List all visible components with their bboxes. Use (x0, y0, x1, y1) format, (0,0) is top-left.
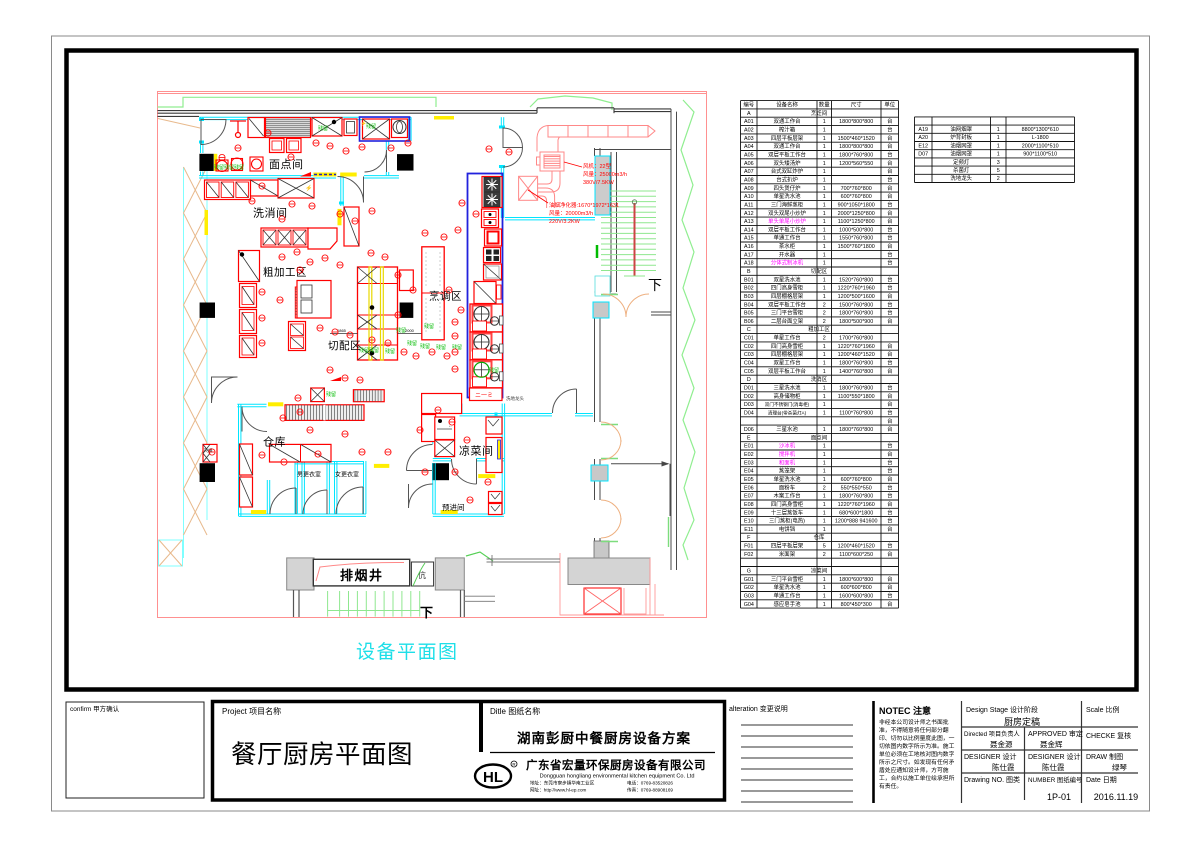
svg-text:定频灯: 定频灯 (953, 158, 970, 166)
svg-text:E02: E02 (744, 452, 754, 458)
svg-text:A14: A14 (744, 227, 754, 233)
svg-text:四头煲仔炉: 四头煲仔炉 (774, 184, 801, 192)
svg-text:NUMBER 图纸编号: NUMBER 图纸编号 (1028, 775, 1082, 784)
svg-text:C05: C05 (744, 369, 754, 375)
svg-text:双头矮汤炉: 双头矮汤炉 (774, 159, 801, 167)
svg-text:烹饪间: 烹饪间 (811, 109, 827, 117)
svg-text:清理台(带杀菌灯A): 清理台(带杀菌灯A) (768, 409, 807, 416)
svg-text:台: 台 (887, 300, 892, 308)
svg-text:1: 1 (823, 194, 826, 200)
svg-text:单通工作台: 单通工作台 (774, 234, 801, 242)
svg-text:1500*460*1520: 1500*460*1520 (838, 136, 875, 142)
svg-text:G02: G02 (744, 585, 754, 591)
svg-text:1: 1 (823, 227, 826, 233)
svg-text:尺寸: 尺寸 (851, 101, 862, 109)
svg-text:餐厅厨房平面图: 餐厅厨房平面图 (231, 741, 413, 769)
svg-text:1: 1 (823, 410, 826, 416)
svg-text:双星工作台: 双星工作台 (774, 359, 801, 367)
svg-text:湖南彭厨中餐厨房设备方案: 湖南彭厨中餐厨房设备方案 (517, 730, 691, 746)
svg-text:烹调区: 烹调区 (429, 290, 462, 303)
svg-text:仓库: 仓库 (814, 533, 825, 541)
svg-text:1100*550*1800: 1100*550*1800 (838, 394, 875, 400)
svg-text:1: 1 (823, 244, 826, 250)
svg-text:CHECKE 复核: CHECKE 复核 (1086, 731, 1131, 740)
svg-text:1P-01: 1P-01 (1047, 792, 1071, 802)
svg-text:残留: 残留 (424, 323, 434, 330)
svg-text:三门平台雪柜: 三门平台雪柜 (771, 575, 804, 583)
svg-text:E03: E03 (744, 460, 754, 466)
svg-text:台: 台 (887, 292, 892, 300)
svg-text:E: E (747, 435, 751, 441)
svg-text:1: 1 (823, 136, 826, 142)
svg-text:700*760*800: 700*760*800 (841, 186, 872, 192)
svg-text:切配区: 切配区 (328, 340, 361, 352)
svg-text:灭蝇: 灭蝇 (204, 447, 213, 454)
svg-text:台: 台 (887, 525, 892, 533)
svg-text:台: 台 (887, 242, 892, 250)
svg-text:残留: 残留 (489, 367, 499, 374)
svg-text:2000*1250*800: 2000*1250*800 (838, 211, 875, 217)
svg-text:双层平板工作台: 双层平板工作台 (768, 225, 806, 233)
svg-text:A16: A16 (744, 244, 754, 250)
svg-text:三门平台雪柜: 三门平台雪柜 (771, 309, 804, 317)
svg-text:台: 台 (887, 159, 892, 167)
svg-text:1: 1 (823, 585, 826, 591)
svg-text:A11: A11 (744, 202, 753, 208)
svg-text:1800*760*800: 1800*760*800 (839, 386, 873, 392)
svg-text:下: 下 (420, 605, 433, 620)
svg-text:残留: 残留 (396, 327, 406, 334)
svg-text:女更衣室: 女更衣室 (335, 471, 359, 479)
svg-text:单头单尾小炒炉: 单头单尾小炒炉 (768, 217, 806, 225)
svg-text:1200*460*1520: 1200*460*1520 (838, 352, 875, 358)
svg-text:十三层蒸饭车: 十三层蒸饭车 (771, 508, 804, 516)
svg-text:广东省宏量环保厨房设备有限公司: 广东省宏量环保厨房设备有限公司 (526, 758, 706, 772)
svg-text:600*600*800: 600*600*800 (841, 585, 872, 591)
svg-text:双星洗水池: 双星洗水池 (774, 275, 802, 283)
svg-text:1500*760*800: 1500*760*800 (839, 302, 873, 308)
svg-text:男更衣室: 男更衣室 (297, 471, 321, 479)
svg-text:单位必须在工地核对图内数字: 单位必须在工地核对图内数字 (879, 750, 955, 758)
svg-text:A06: A06 (744, 161, 754, 167)
svg-text:8800*1300*610: 8800*1300*610 (1022, 127, 1059, 133)
svg-text:凉菜间: 凉菜间 (459, 444, 494, 458)
svg-text:分体式制冰机: 分体式制冰机 (771, 259, 804, 267)
svg-text:预进间: 预进间 (442, 502, 465, 512)
svg-text:1600*600*800: 1600*600*800 (839, 594, 873, 600)
svg-text:1800*760*800: 1800*760*800 (839, 427, 873, 433)
svg-text:单星洗水池: 单星洗水池 (774, 475, 802, 483)
svg-text:设备平面图: 设备平面图 (356, 641, 459, 663)
svg-text:1: 1 (823, 444, 826, 450)
svg-text:四层棚格层架: 四层棚格层架 (771, 350, 804, 358)
svg-text:1: 1 (823, 494, 826, 500)
svg-text:800*450*300: 800*450*300 (841, 602, 872, 608)
svg-text:四门高身雪柜: 四门高身雪柜 (771, 500, 804, 508)
svg-text:NOTEC 注意: NOTEC 注意 (879, 705, 931, 716)
svg-text:搅拌机: 搅拌机 (779, 450, 796, 458)
svg-text:所示之尺寸。如发现有任何矛: 所示之尺寸。如发现有任何矛 (879, 758, 955, 766)
svg-text:1: 1 (823, 602, 826, 608)
svg-text:D04: D04 (744, 410, 754, 416)
svg-text:1200*460*1520: 1200*460*1520 (838, 544, 875, 550)
svg-text:1: 1 (823, 519, 826, 525)
svg-text:E11: E11 (744, 527, 753, 533)
svg-text:油网烟罩: 油网烟罩 (950, 125, 972, 133)
svg-text:HL: HL (483, 769, 503, 786)
svg-text:1800*760*800: 1800*760*800 (839, 153, 873, 159)
svg-text:1: 1 (823, 577, 826, 583)
svg-text:台: 台 (887, 417, 892, 425)
svg-text:E04: E04 (744, 469, 754, 475)
svg-text:1200*560*550: 1200*560*550 (839, 161, 873, 167)
svg-text:confirm 甲方确认: confirm 甲方确认 (70, 704, 120, 713)
svg-text:G04: G04 (744, 602, 754, 608)
svg-text:盾处应通知设计师，方可施: 盾处应通知设计师，方可施 (879, 766, 949, 774)
svg-text:1: 1 (823, 236, 826, 242)
svg-text:G: G (747, 569, 751, 575)
svg-text:切配区: 切配区 (811, 268, 828, 275)
svg-text:E01: E01 (744, 444, 754, 450)
svg-text:台: 台 (887, 425, 892, 433)
svg-text:台: 台 (887, 392, 892, 400)
svg-text:380V/7.5KW: 380V/7.5KW (583, 180, 615, 186)
svg-text:F02: F02 (744, 552, 753, 558)
svg-text:单星洗水池: 单星洗水池 (774, 192, 802, 200)
svg-text:D07: D07 (918, 152, 928, 158)
svg-text:1: 1 (823, 294, 826, 300)
svg-text:1: 1 (823, 477, 826, 483)
svg-text:900*1100*510: 900*1100*510 (1023, 152, 1057, 158)
svg-text:C: C (747, 327, 751, 333)
svg-text:残留: 残留 (436, 344, 446, 351)
svg-text:残留: 残留 (385, 348, 395, 355)
svg-text:Project 项目名称: Project 项目名称 (222, 706, 281, 716)
svg-text:残留: 残留 (420, 343, 430, 350)
svg-text:双门不锈钢门(消毒柜): 双门不锈钢门(消毒柜) (765, 401, 810, 408)
svg-text:C04: C04 (744, 361, 754, 367)
svg-text:三星洗水池: 三星洗水池 (774, 384, 802, 392)
svg-text:台: 台 (887, 508, 892, 516)
svg-text:台: 台 (887, 517, 892, 525)
svg-text:1: 1 (997, 135, 1000, 141)
svg-text:杀菌灯: 杀菌灯 (953, 166, 970, 174)
svg-text:2000*1100*510: 2000*1100*510 (1022, 143, 1059, 149)
svg-text:A04: A04 (744, 144, 754, 150)
svg-text:E12: E12 (918, 143, 928, 149)
svg-text:1220*760*1960: 1220*760*1960 (838, 344, 875, 350)
svg-text:开水器: 开水器 (779, 250, 796, 258)
svg-text:A20: A20 (918, 135, 928, 141)
svg-text:1: 1 (823, 527, 826, 533)
svg-text:2: 2 (823, 319, 826, 325)
svg-text:台: 台 (887, 400, 892, 408)
svg-text:台: 台 (887, 200, 892, 208)
svg-text:3: 3 (997, 160, 1000, 166)
svg-text:台: 台 (887, 458, 892, 466)
svg-text:A05: A05 (744, 153, 754, 159)
svg-text:双层平板工作台: 双层平板工作台 (768, 151, 806, 159)
svg-text:550*550*550: 550*550*550 (841, 485, 872, 491)
svg-text:1800*760*800: 1800*760*800 (839, 311, 873, 317)
svg-text:A18: A18 (744, 261, 754, 267)
svg-text:仓库: 仓库 (263, 435, 286, 449)
svg-text:1500*760*1800: 1500*760*1800 (838, 244, 875, 250)
svg-text:台: 台 (887, 359, 892, 367)
svg-text:F01: F01 (744, 544, 753, 550)
svg-text:编号: 编号 (743, 101, 754, 109)
svg-text:绿琴: 绿琴 (1112, 763, 1128, 772)
svg-text:A12: A12 (744, 211, 754, 217)
svg-text:风量：20000m3/h: 风量：20000m3/h (549, 210, 593, 217)
svg-text:Drawing NO. 图类: Drawing NO. 图类 (964, 775, 1020, 784)
svg-text:台: 台 (887, 350, 892, 358)
svg-text:A19: A19 (918, 127, 928, 133)
svg-text:680*600*1800: 680*600*1800 (839, 510, 873, 516)
svg-text:1: 1 (823, 286, 826, 292)
svg-text:A03: A03 (744, 136, 754, 142)
svg-text:1100*600*250: 1100*600*250 (839, 552, 873, 558)
svg-text:2: 2 (823, 552, 826, 558)
svg-text:传真：0769-88908169: 传真：0769-88908169 (627, 787, 673, 794)
svg-text:双层平板工作台: 双层平板工作台 (768, 367, 806, 375)
svg-text:下: 下 (648, 277, 662, 293)
svg-text:聂金辉: 聂金辉 (1040, 739, 1063, 749)
svg-text:凉菜间: 凉菜间 (811, 567, 827, 575)
svg-text:三星水池: 三星水池 (776, 425, 798, 433)
svg-text:炉背封板: 炉背封板 (950, 133, 972, 141)
svg-text:准，不得随意将任何部分翻: 准，不得随意将任何部分翻 (879, 726, 949, 734)
svg-text:DESIGNER 设计: DESIGNER 设计 (1028, 752, 1081, 761)
svg-text:残留: 残留 (318, 125, 328, 132)
svg-text:A07: A07 (744, 169, 754, 175)
svg-text:1: 1 (823, 394, 826, 400)
svg-text:1800*600*800: 1800*600*800 (839, 577, 873, 583)
svg-text:1800*760*800: 1800*760*800 (839, 361, 873, 367)
svg-text:DRAW 制图: DRAW 制图 (1086, 752, 1123, 761)
svg-text:1: 1 (823, 169, 826, 175)
svg-text:台: 台 (887, 542, 892, 550)
svg-text:台: 台 (887, 442, 892, 450)
svg-text:D03: D03 (744, 402, 754, 408)
svg-text:B02: B02 (744, 286, 754, 292)
svg-text:E07: E07 (744, 494, 754, 500)
svg-text:1: 1 (823, 202, 826, 208)
svg-text:双头双尾小炒炉: 双头双尾小炒炉 (768, 209, 806, 217)
svg-text:双通工作台: 双通工作台 (774, 117, 801, 125)
svg-text:蒸笼架: 蒸笼架 (779, 467, 796, 475)
svg-text:台: 台 (887, 184, 892, 192)
svg-text:米面架: 米面架 (779, 550, 796, 558)
svg-text:B03: B03 (744, 294, 754, 300)
svg-text:台: 台 (887, 583, 892, 591)
svg-text:四门高身雪柜: 四门高身雪柜 (771, 342, 804, 350)
svg-text:D06: D06 (744, 427, 754, 433)
svg-text:残留: 残留 (407, 340, 417, 347)
svg-text:洗地龙头: 洗地龙头 (950, 174, 972, 182)
svg-text:单星洗水池: 单星洗水池 (774, 583, 802, 591)
svg-text:600*760*800: 600*760*800 (841, 477, 872, 483)
svg-text:电话：0769-83520826: 电话：0769-83520826 (627, 780, 673, 787)
svg-text:Date 日期: Date 日期 (1086, 776, 1117, 784)
svg-text:1700*760*800: 1700*760*800 (839, 336, 873, 342)
svg-text:台: 台 (887, 275, 892, 283)
svg-text:2: 2 (823, 311, 826, 317)
svg-text:1: 1 (823, 352, 826, 358)
svg-text:1: 1 (997, 152, 1000, 158)
svg-text:1: 1 (823, 186, 826, 192)
svg-text:E05: E05 (744, 477, 754, 483)
svg-text:台: 台 (887, 126, 892, 134)
svg-text:面粉车: 面粉车 (779, 483, 796, 491)
svg-text:1: 1 (823, 452, 826, 458)
svg-text:洗地龙头: 洗地龙头 (506, 395, 524, 402)
svg-text:A: A (747, 111, 751, 117)
svg-text:1800*800*800: 1800*800*800 (839, 119, 873, 125)
svg-text:粗加工区: 粗加工区 (263, 267, 307, 279)
svg-text:1: 1 (823, 119, 826, 125)
svg-text:1: 1 (823, 277, 826, 283)
svg-text:B05: B05 (744, 311, 754, 317)
svg-text:D: D (747, 377, 751, 383)
svg-text:厨房定稿: 厨房定稿 (1004, 716, 1040, 727)
svg-text:茶水柜: 茶水柜 (779, 242, 796, 250)
svg-text:台: 台 (887, 384, 892, 392)
svg-text:有责任。: 有责任。 (879, 782, 902, 790)
svg-text:D02: D02 (744, 394, 754, 400)
svg-text:粗加工区: 粗加工区 (808, 325, 830, 333)
svg-text:油烟网罩: 油烟网罩 (950, 141, 972, 149)
svg-text:1: 1 (823, 369, 826, 375)
svg-text:alteration 变更说明: alteration 变更说明 (729, 704, 788, 713)
svg-text:←: ← (448, 423, 453, 429)
svg-text:1200*500*1600: 1200*500*1600 (838, 294, 875, 300)
svg-text:台: 台 (887, 575, 892, 583)
svg-text:1: 1 (823, 153, 826, 159)
svg-text:G03: G03 (744, 594, 754, 600)
svg-text:1: 1 (823, 510, 826, 516)
svg-text:伉: 伉 (418, 570, 426, 580)
svg-text:残留: 残留 (326, 391, 336, 398)
svg-text:1800*800*800: 1800*800*800 (839, 144, 873, 150)
svg-text:台: 台 (887, 234, 892, 242)
svg-text:和面机: 和面机 (779, 458, 796, 466)
svg-text:木案工作台: 木案工作台 (774, 492, 801, 500)
svg-text:台: 台 (887, 259, 892, 267)
svg-text:残留: 残留 (366, 123, 376, 130)
svg-text:1: 1 (997, 127, 1000, 133)
svg-text:台: 台 (887, 592, 892, 600)
svg-text:B06: B06 (744, 319, 754, 325)
svg-text:1400*760*800: 1400*760*800 (839, 369, 873, 375)
svg-text:2: 2 (823, 302, 826, 308)
svg-text:陈仕霞: 陈仕霞 (1042, 762, 1065, 772)
svg-text:二层台面立架: 二层台面立架 (771, 317, 804, 325)
svg-text:A01: A01 (744, 119, 754, 125)
svg-text:陈仕霞: 陈仕霞 (992, 762, 1015, 772)
svg-text:网址：http∶//www.hl-ep.com: 网址：http∶//www.hl-ep.com (530, 787, 587, 794)
svg-text:台: 台 (887, 209, 892, 217)
svg-text:1100*760*800: 1100*760*800 (839, 410, 873, 416)
svg-text:1220*760*1960: 1220*760*1960 (838, 286, 875, 292)
svg-text:B04: B04 (744, 302, 754, 308)
svg-text:设备名称: 设备名称 (776, 101, 798, 109)
svg-text:1: 1 (823, 460, 826, 466)
svg-text:220V/3.2KW: 220V/3.2KW (549, 219, 581, 225)
svg-text:1800*500*900: 1800*500*900 (839, 319, 873, 325)
svg-text:面点间: 面点间 (269, 158, 304, 171)
svg-text:台: 台 (887, 475, 892, 483)
svg-text:A08: A08 (744, 178, 754, 184)
svg-text:1520*760*800: 1520*760*800 (839, 277, 873, 283)
svg-text:风机：22型: 风机：22型 (583, 162, 612, 170)
svg-text:油烟网罩: 油烟网罩 (950, 150, 972, 158)
svg-text:1: 1 (823, 402, 826, 408)
svg-text:L-1800: L-1800 (1032, 135, 1049, 141)
svg-text:电饼铛: 电饼铛 (779, 525, 795, 533)
svg-text:四层平板层架: 四层平板层架 (771, 134, 804, 142)
svg-text:台: 台 (887, 117, 892, 125)
svg-text:A02: A02 (744, 128, 754, 134)
svg-text:单位: 单位 (884, 101, 895, 109)
svg-text:台: 台 (887, 151, 892, 159)
svg-text:Directed 项目负责人: Directed 项目负责人 (964, 730, 1020, 738)
svg-text:台: 台 (887, 500, 892, 508)
svg-text:1: 1 (823, 502, 826, 508)
svg-text:切依图内数字所示为准。施工: 切依图内数字所示为准。施工 (879, 742, 955, 750)
svg-text:榨汁箱: 榨汁箱 (779, 126, 796, 134)
svg-text:台: 台 (887, 408, 892, 416)
svg-text:2: 2 (997, 176, 1000, 182)
svg-text:四门高身雪柜: 四门高身雪柜 (771, 284, 804, 292)
svg-text:台: 台 (887, 317, 892, 325)
svg-text:台: 台 (887, 142, 892, 150)
svg-text:600*760*800: 600*760*800 (841, 194, 872, 200)
svg-text:油烟净化器:1670*1972*1631: 油烟净化器:1670*1972*1631 (549, 201, 619, 209)
svg-text:1550*760*800: 1550*760*800 (839, 236, 873, 242)
svg-text:A17: A17 (744, 252, 754, 258)
svg-text:1000*500*800: 1000*500*800 (839, 227, 873, 233)
svg-text:台: 台 (887, 600, 892, 608)
svg-text:⚡: ⚡ (361, 120, 367, 127)
svg-text:D01: D01 (744, 386, 754, 392)
svg-text:2: 2 (823, 485, 826, 491)
svg-text:1: 1 (823, 361, 826, 367)
svg-text:E08: E08 (744, 502, 754, 508)
svg-text:1: 1 (823, 261, 826, 267)
svg-text:面点间: 面点间 (811, 433, 827, 441)
svg-text:E06: E06 (744, 485, 754, 491)
svg-text:双层平板工作台: 双层平板工作台 (768, 300, 806, 308)
svg-text:台: 台 (887, 467, 892, 475)
svg-text:1: 1 (997, 143, 1000, 149)
svg-text:四层棚格层架: 四层棚格层架 (771, 292, 804, 300)
svg-text:单通工作台: 单通工作台 (774, 592, 801, 600)
svg-text:1: 1 (823, 161, 826, 167)
svg-text:2: 2 (823, 336, 826, 342)
svg-text:1220*760*1960: 1220*760*1960 (838, 502, 875, 508)
svg-text:台: 台 (887, 342, 892, 350)
svg-text:1: 1 (823, 427, 826, 433)
svg-text:C02: C02 (744, 344, 754, 350)
svg-text:聂金源: 聂金源 (990, 739, 1013, 749)
svg-text:四层平板层架: 四层平板层架 (771, 542, 804, 550)
svg-text:2016.11.19: 2016.11.19 (1094, 792, 1138, 802)
svg-text:台: 台 (887, 284, 892, 292)
svg-text:残留残留残留: 残留残留残留 (214, 164, 244, 171)
svg-text:1: 1 (823, 252, 826, 258)
svg-text:C01: C01 (744, 336, 754, 342)
